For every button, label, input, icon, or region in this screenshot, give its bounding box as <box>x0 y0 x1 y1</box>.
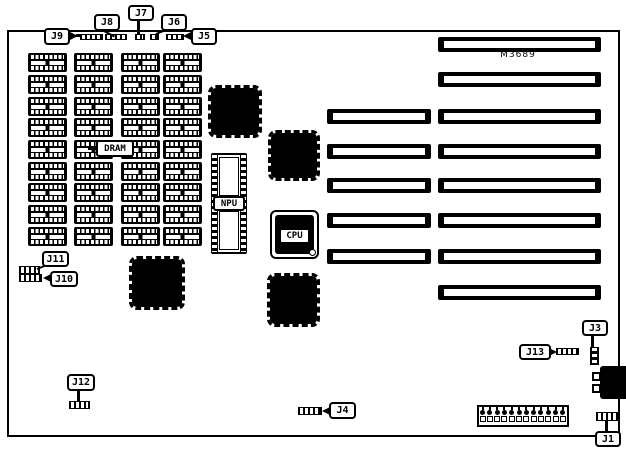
dram-chip-slot <box>77 213 110 217</box>
power-pin <box>553 410 558 415</box>
npu-socket: NPU <box>211 153 247 254</box>
dram-chip-slot <box>31 126 64 130</box>
callout-j6: J6 <box>161 14 187 31</box>
callout-j5-label: J5 <box>198 31 210 42</box>
dram-chip <box>28 140 67 159</box>
callout-j11-label: J11 <box>46 254 64 265</box>
qfp-chip <box>208 85 262 138</box>
dram-chip-slot <box>124 83 157 87</box>
dram-chip-slot <box>77 191 110 195</box>
j5-header-pins <box>166 34 184 40</box>
expansion-slot-long <box>438 72 601 87</box>
dram-chip <box>74 53 113 72</box>
dram-chip-slot <box>31 83 64 87</box>
callout-j9: J9 <box>44 28 70 45</box>
callout-j12-leader <box>77 390 80 402</box>
dram-chip-slot <box>77 126 110 130</box>
callout-j5: J5 <box>191 28 217 45</box>
expansion-slot-short <box>327 109 431 124</box>
callout-j3-leader <box>591 336 594 348</box>
dram-chip <box>163 75 202 94</box>
dram-chip-slot <box>166 170 199 174</box>
callout-dram: DRAM <box>96 140 134 157</box>
callout-j12: J12 <box>67 374 95 391</box>
power-hole <box>560 416 566 422</box>
callout-j12-label: J12 <box>72 377 90 388</box>
callout-j7: J7 <box>128 5 154 21</box>
dram-chip <box>121 97 160 116</box>
callout-j3-label: J3 <box>589 323 601 334</box>
dram-chip <box>74 227 113 246</box>
dram-chip <box>121 118 160 137</box>
power-hole <box>487 416 493 422</box>
dram-chip <box>163 118 202 137</box>
dram-chip <box>163 140 202 159</box>
dram-chip-slot <box>31 105 64 109</box>
power-hole <box>516 416 522 422</box>
dram-chip <box>74 97 113 116</box>
expansion-slot-long <box>438 213 601 228</box>
din-tab-icon <box>592 384 601 393</box>
dram-chip-slot <box>124 235 157 239</box>
dram-chip-slot <box>77 235 110 239</box>
dram-chip-slot <box>124 191 157 195</box>
dram-chip-slot <box>124 170 157 174</box>
cpu-chip: CPU <box>270 210 319 259</box>
cpu-label: CPU <box>279 228 310 244</box>
expansion-slot-short <box>327 213 431 228</box>
power-pin <box>502 410 507 415</box>
power-pin <box>524 410 529 415</box>
dram-chip <box>121 75 160 94</box>
power-pin <box>546 410 551 415</box>
dram-chip <box>74 183 113 202</box>
power-hole <box>553 416 559 422</box>
dram-chip-slot <box>77 83 110 87</box>
qfp-chip <box>268 130 320 181</box>
dram-chip-slot <box>77 61 110 65</box>
callout-j3: J3 <box>582 320 608 336</box>
dram-chip-slot <box>77 105 110 109</box>
dram-chip-slot <box>166 148 199 152</box>
dram-chip <box>121 183 160 202</box>
dram-chip-slot <box>166 235 199 239</box>
j9-header-pins <box>80 34 103 40</box>
expansion-slot-short <box>327 144 431 159</box>
dram-chip <box>121 205 160 224</box>
callout-j6-label: J6 <box>168 17 180 28</box>
j12-connector <box>69 401 90 409</box>
expansion-slot-long <box>438 109 601 124</box>
power-hole <box>538 416 544 422</box>
power-pin <box>480 410 485 415</box>
dram-chip <box>28 75 67 94</box>
dram-chip-slot <box>124 126 157 130</box>
dram-chip-slot <box>31 213 64 217</box>
dram-chip <box>28 118 67 137</box>
dram-chip <box>163 205 202 224</box>
callout-j7-leader <box>137 21 140 34</box>
dram-chip <box>121 227 160 246</box>
dram-chip <box>163 97 202 116</box>
callout-j9-leader <box>76 34 82 37</box>
power-hole <box>501 416 507 422</box>
callout-j8-label: J8 <box>101 17 113 28</box>
dram-chip <box>28 183 67 202</box>
npu-socket-cavity-top <box>219 157 239 196</box>
dram-chip-slot <box>77 170 110 174</box>
dram-chip-slot <box>166 83 199 87</box>
callout-j9-label: J9 <box>51 31 63 42</box>
j4-connector <box>298 407 322 415</box>
expansion-slot-long <box>438 285 601 300</box>
power-hole <box>523 416 529 422</box>
j6-header-pins <box>150 34 159 40</box>
expansion-slot-long <box>438 144 601 159</box>
callout-j5-pointer-icon <box>183 32 191 40</box>
npu-label: NPU <box>213 196 245 211</box>
power-hole <box>531 416 537 422</box>
cpu-label-text: CPU <box>286 231 302 241</box>
dram-label-text: DRAM <box>104 144 126 154</box>
dram-chip <box>74 75 113 94</box>
dram-chip <box>28 205 67 224</box>
dram-chip <box>28 227 67 246</box>
npu-socket-cavity-bottom <box>219 211 239 250</box>
cpu-pin1-notch-icon <box>309 249 316 256</box>
dram-chip <box>163 227 202 246</box>
dram-chip <box>28 53 67 72</box>
power-hole <box>545 416 551 422</box>
dram-chip-slot <box>124 105 157 109</box>
callout-j10-label: J10 <box>55 274 73 285</box>
dram-chip-slot <box>124 61 157 65</box>
dram-chip-slot <box>31 191 64 195</box>
dram-chip <box>163 53 202 72</box>
dram-chip <box>74 162 113 181</box>
qfp-chip <box>129 256 185 310</box>
callout-j11: J11 <box>42 251 69 267</box>
callout-j4-label: J4 <box>336 405 348 416</box>
callout-j8: J8 <box>94 14 120 31</box>
dram-chip-slot <box>124 213 157 217</box>
dram-chip-slot <box>31 170 64 174</box>
power-pin <box>495 410 500 415</box>
power-pin <box>517 410 522 415</box>
board-part-number: M3689 <box>490 50 546 62</box>
dram-chip <box>163 162 202 181</box>
qfp-chip <box>267 273 320 327</box>
callout-j1-label: J1 <box>602 434 614 445</box>
expansion-slot-long <box>438 178 601 193</box>
expansion-slot-short <box>327 249 431 264</box>
din-tab-icon <box>592 372 601 381</box>
expansion-slot-short <box>327 178 431 193</box>
dram-chip-slot <box>31 148 64 152</box>
j3-connector <box>590 347 599 365</box>
j10-connector <box>19 274 42 282</box>
power-hole <box>494 416 500 422</box>
dram-chip-slot <box>166 105 199 109</box>
power-hole <box>480 416 486 422</box>
dram-chip <box>121 53 160 72</box>
expansion-slot-long <box>438 249 601 264</box>
keyboard-din-connector <box>600 366 626 399</box>
dram-chip-slot <box>166 126 199 130</box>
callout-j13-label: J13 <box>526 347 544 358</box>
j13-connector <box>556 348 579 355</box>
npu-label-text: NPU <box>221 199 237 209</box>
dram-chip <box>163 183 202 202</box>
callout-j7-label: J7 <box>135 8 147 19</box>
callout-j10: J10 <box>50 271 78 287</box>
dram-chip <box>74 205 113 224</box>
dram-chip <box>121 162 160 181</box>
j7-header-pins <box>135 34 145 40</box>
callout-j13: J13 <box>519 344 551 360</box>
power-hole <box>509 416 515 422</box>
callout-j1: J1 <box>595 431 621 447</box>
dram-chip-slot <box>166 191 199 195</box>
dram-chip-slot <box>31 61 64 65</box>
callout-j4: J4 <box>329 402 356 419</box>
dram-chip <box>74 118 113 137</box>
dram-chip <box>28 97 67 116</box>
dram-chip <box>28 162 67 181</box>
dram-chip-slot <box>166 213 199 217</box>
dram-chip-slot <box>166 61 199 65</box>
motherboard-diagram: NPU CPU M3689 DRAM J9 J8 J7 J6 J5 J11 J1… <box>0 0 626 455</box>
dram-chip-slot <box>31 235 64 239</box>
